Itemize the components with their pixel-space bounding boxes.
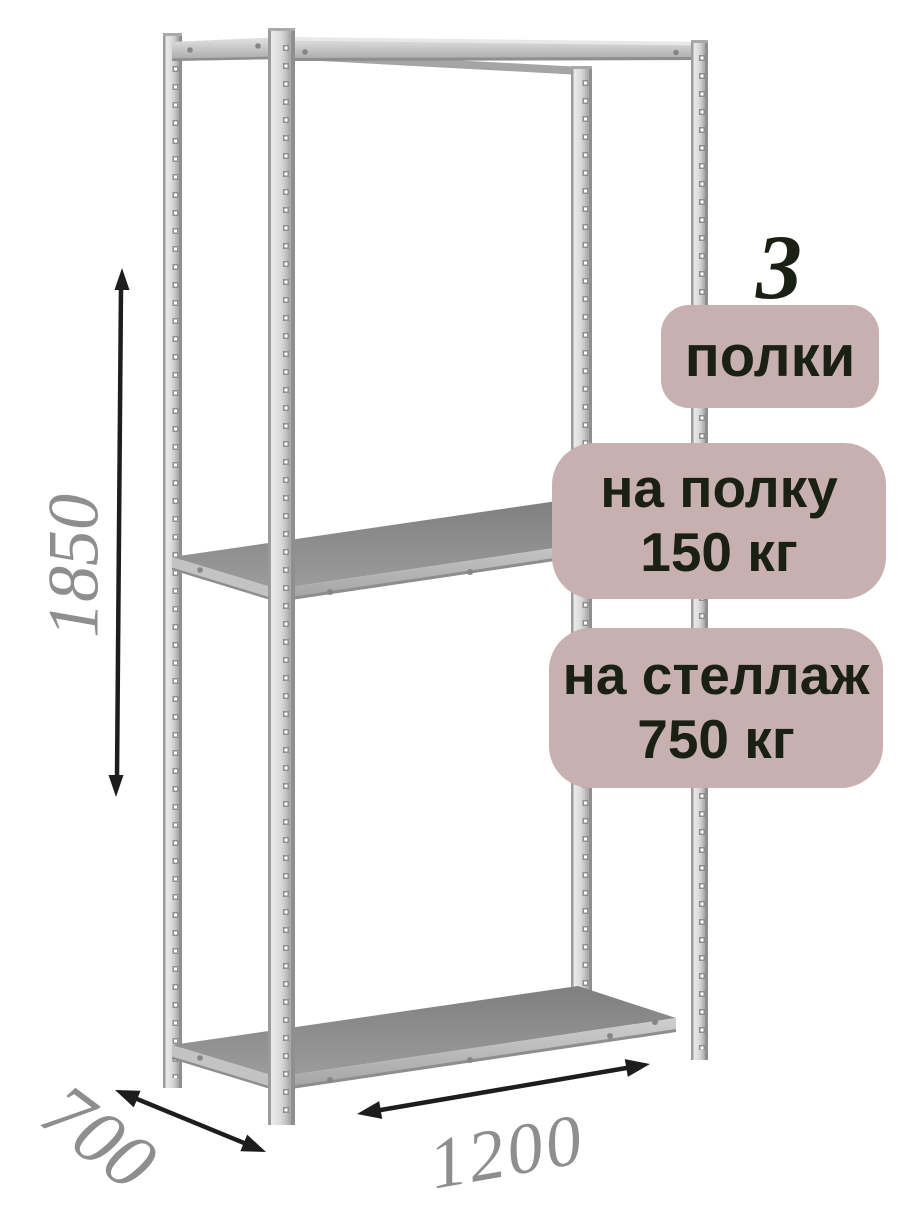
rack-load-badge: на стеллаж 750 кг xyxy=(549,628,883,788)
shelving-rack-illustration xyxy=(0,0,900,1200)
rack-top-side-beam xyxy=(172,37,280,61)
height-dimension-label: 1850 xyxy=(33,494,116,638)
shelf-load-line1: на полку xyxy=(600,457,838,521)
rack-load-line2: 750 кг xyxy=(637,708,794,772)
shelf-load-line2: 150 кг xyxy=(640,521,797,585)
product-image: 1850 700 1200 3 полки на полку 150 кг на… xyxy=(0,0,900,1200)
rack-top-front-beam xyxy=(280,37,700,61)
rack-post-front-left xyxy=(268,28,295,1125)
shelf-load-badge: на полку 150 кг xyxy=(552,443,886,599)
shelf-count-label: полки xyxy=(685,323,856,390)
rack-bottom-shelf xyxy=(172,986,676,1091)
rack-load-line1: на стеллаж xyxy=(563,644,870,708)
shelf-count-badge: полки xyxy=(661,305,879,408)
